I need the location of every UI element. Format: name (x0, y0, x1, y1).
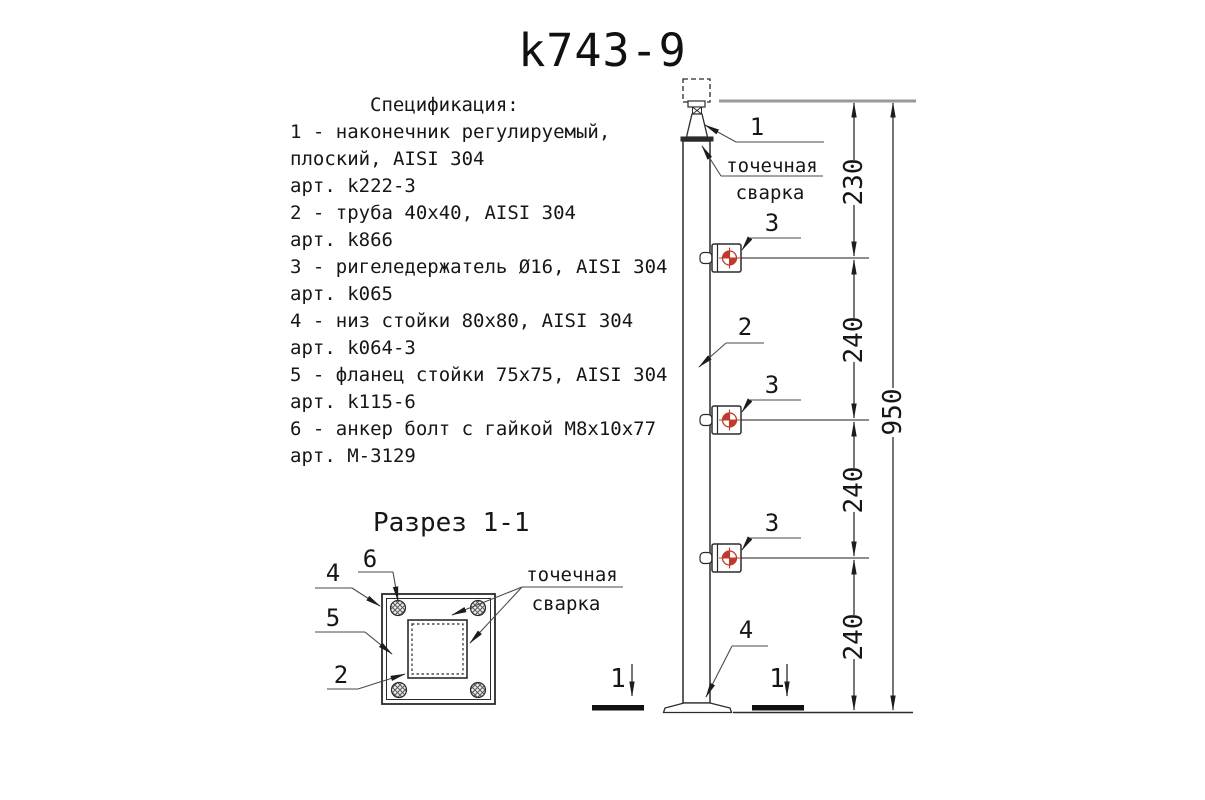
dim-value-240b: 240 (839, 467, 869, 514)
cut-mark-label-left: 1 (610, 664, 626, 694)
drawing-canvas: k743-9 Спецификация: 1 - наконечник регу… (0, 0, 1205, 800)
column-callout-3c: 3 (765, 509, 779, 537)
tube-section-outer (408, 620, 467, 678)
section-callout-2: 2 (334, 661, 348, 689)
column-callout-3a: 3 (765, 209, 779, 237)
column-callout-1: 1 (750, 113, 764, 141)
cut-mark-label-right: 1 (769, 664, 785, 694)
leader-line (452, 587, 522, 615)
dim-value-950: 950 (878, 389, 908, 436)
section-view-callouts (315, 572, 623, 689)
column-callout-3b: 3 (765, 371, 779, 399)
anchor-bolt (392, 683, 407, 698)
dim-value-240c: 240 (839, 614, 869, 661)
section-callout-6: 6 (363, 545, 377, 573)
section-view (382, 594, 495, 704)
leader-line (365, 632, 392, 654)
section-weld-label-line1: точечная (526, 564, 618, 586)
tip-collar (688, 101, 705, 107)
leader-line (742, 400, 750, 412)
section-weld-label-line2: сварка (532, 593, 601, 615)
tube-section-weld-stitch (412, 624, 463, 674)
adjustable-tip-cone (687, 114, 708, 137)
dim-value-240a: 240 (839, 317, 869, 364)
technical-drawing: 4 6 5 2 точечная сварка (0, 0, 1205, 800)
leader-line (742, 538, 750, 550)
column-callout-2: 2 (738, 313, 752, 341)
anchor-bolt (391, 601, 406, 616)
cut-plane-bar (592, 705, 644, 711)
anchor-bolt (471, 683, 486, 698)
column-weld-label-line2: сварка (736, 182, 805, 204)
cut-plane-bar (752, 705, 804, 711)
holder-pin (700, 415, 712, 426)
post-base (664, 703, 732, 713)
leader-line (742, 238, 750, 250)
handrail-end-dashed (683, 79, 710, 102)
holder-pin (700, 553, 712, 564)
leader-line (352, 588, 380, 606)
column-weld-label-line1: точечная (726, 155, 818, 177)
section-callout-4: 4 (326, 559, 340, 587)
column-callout-4: 4 (739, 616, 753, 644)
dim-value-230: 230 (839, 159, 869, 206)
holder-pin (700, 253, 712, 264)
section-callout-5: 5 (326, 604, 340, 632)
leader-line (393, 572, 398, 601)
